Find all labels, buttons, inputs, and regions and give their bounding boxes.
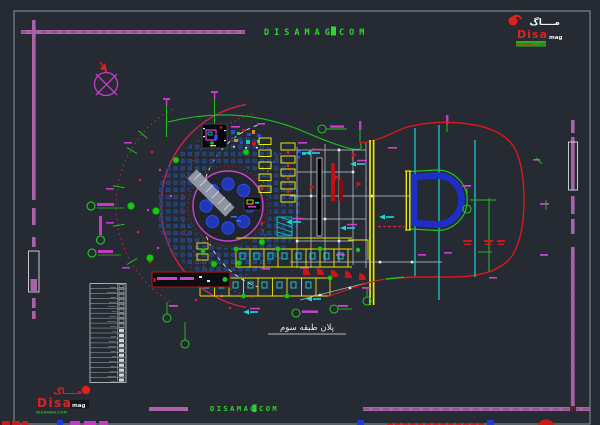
legend-row-marker bbox=[119, 374, 124, 377]
legend-row-label: ــــــ bbox=[110, 378, 116, 382]
legend-row-label: ـــــ bbox=[111, 354, 117, 358]
legend-row-marker bbox=[119, 319, 124, 322]
legend-row-marker bbox=[119, 334, 124, 337]
legend-row-label: ــــــــ bbox=[108, 359, 116, 363]
watermark-top-left-text: DISAMAG bbox=[264, 28, 335, 38]
watermark-cursor-block bbox=[253, 405, 257, 413]
legend-row-label: ــــــــــ bbox=[106, 289, 116, 293]
legend-row-marker bbox=[119, 289, 124, 292]
legend-row-label: ـــــــ bbox=[109, 369, 116, 373]
plan-right-lobe bbox=[378, 122, 524, 300]
legend-row-marker bbox=[119, 324, 124, 327]
legend-row-label: ــــــــ bbox=[108, 314, 116, 318]
logo-dot-icon bbox=[509, 17, 518, 26]
legend-row-label: ــــ bbox=[111, 329, 116, 333]
green-micro-ticks bbox=[536, 158, 546, 210]
legend-row-marker bbox=[119, 314, 124, 317]
ruler-bar-top bbox=[21, 30, 245, 34]
legend-row-marker bbox=[119, 378, 124, 381]
detail-box-1 bbox=[202, 124, 227, 148]
legend-row-label: ــــــــــ bbox=[106, 319, 116, 323]
floor-plan bbox=[106, 91, 549, 348]
legend-row-label: ــــــ bbox=[110, 349, 116, 353]
logo-dot-icon bbox=[82, 386, 90, 394]
ruler-bar-left bbox=[29, 20, 40, 319]
legend-row-marker bbox=[119, 304, 124, 307]
logo-arabic-text: مــــاگ bbox=[530, 16, 560, 28]
site-logo-top-right: مــــاگ Disa mag DISAMAG,COM bbox=[509, 16, 563, 47]
watermark-top: DISAMAG COM bbox=[264, 27, 369, 39]
legend-row-label: ـــــ bbox=[111, 309, 117, 313]
logo-name-text: Disa bbox=[517, 28, 548, 41]
legend-row-marker bbox=[119, 284, 124, 287]
legend-row-label: ــــــــ bbox=[108, 299, 116, 303]
plan-title-text: پلان طبقه سوم bbox=[280, 323, 335, 333]
logo-suffix-text: mag bbox=[72, 403, 85, 409]
legend-row-label: ـــــــــ bbox=[107, 304, 116, 308]
blue-cluster bbox=[297, 150, 306, 159]
logo-suffix-text: mag bbox=[549, 35, 562, 41]
legend-row-marker bbox=[119, 354, 124, 357]
ruler-bar-right bbox=[569, 120, 578, 410]
watermark-cursor-block bbox=[331, 27, 336, 36]
legend-table: ــــــــــــــــــــــــــــــــــــــــ… bbox=[90, 284, 126, 383]
legend-row-marker bbox=[119, 299, 124, 302]
shaft-black-bar bbox=[317, 158, 322, 236]
detail-box-2 bbox=[244, 197, 261, 210]
legend-row-marker bbox=[119, 349, 124, 352]
logo-name-text: Disa bbox=[37, 396, 72, 410]
bold-yellow-wall bbox=[370, 140, 374, 305]
legend-row-marker bbox=[119, 369, 124, 372]
dome bbox=[405, 170, 467, 231]
legend-row-label: ــــــــ bbox=[108, 339, 116, 343]
legend-row-label: ـــــــ bbox=[109, 324, 116, 328]
legend-row-label: ـــــــ bbox=[109, 284, 116, 288]
site-logo-bottom-left: مــــاگ Disa mag DISAMAG,COM bbox=[36, 386, 90, 415]
legend-row-marker bbox=[119, 309, 124, 312]
cad-screenshot: DISAMAG COM DISAMAG COM مــــاگ Disa mag… bbox=[0, 0, 600, 425]
logo-tagline-text: DISAMAG,COM bbox=[36, 410, 68, 415]
legend-row-marker bbox=[119, 329, 124, 332]
red-wall-bar bbox=[331, 163, 335, 201]
watermark-top-right-text: COM bbox=[339, 28, 369, 38]
legend-row-marker bbox=[119, 339, 124, 342]
legend-row-label: ـــــــــ bbox=[107, 344, 116, 348]
north-arrow-icon bbox=[95, 62, 118, 96]
legend-row-label: ــــــ bbox=[110, 364, 116, 368]
title-block: پلان طبقه سوم bbox=[268, 323, 346, 334]
legend-row-label: ــــــــــ bbox=[106, 374, 116, 378]
legend-row-marker bbox=[119, 294, 124, 297]
watermark-bottom: DISAMAG COM bbox=[210, 405, 279, 414]
drawing-canvas: DISAMAG COM DISAMAG COM مــــاگ Disa mag… bbox=[0, 0, 600, 425]
legend-row-marker bbox=[119, 359, 124, 362]
red-wall-bar bbox=[339, 180, 343, 201]
watermark-bottom-left-text: DISAMAG bbox=[210, 405, 257, 413]
watermark-bottom-right-text: COM bbox=[259, 405, 279, 413]
red-micro-labels bbox=[463, 240, 505, 245]
wall-nodes bbox=[296, 149, 414, 263]
legend-row-label: ــــــ bbox=[110, 334, 116, 338]
legend-row-label: ــــــ bbox=[110, 294, 116, 298]
logo-tagline-text: DISAMAG,COM bbox=[516, 42, 546, 46]
label-box bbox=[152, 272, 230, 287]
legend-row-marker bbox=[119, 344, 124, 347]
legend-row-marker bbox=[119, 364, 124, 367]
